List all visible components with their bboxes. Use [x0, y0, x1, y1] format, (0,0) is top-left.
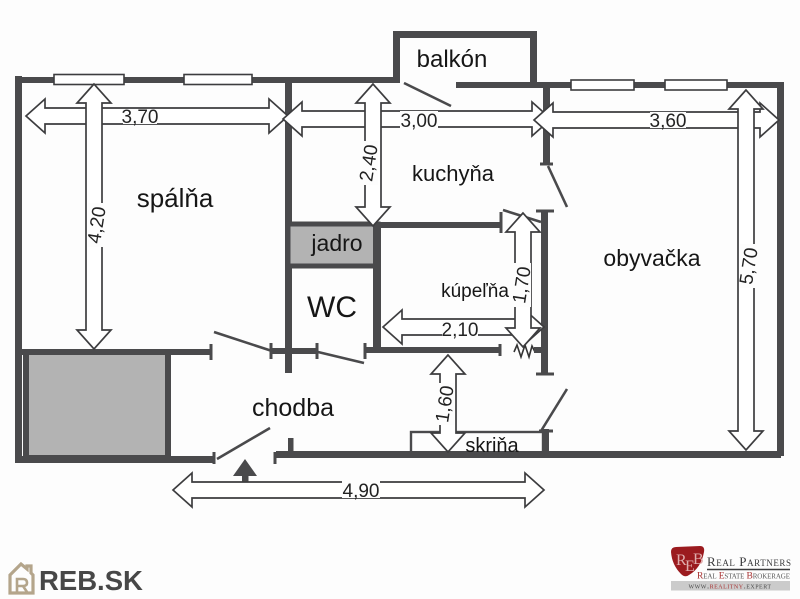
svg-text:WC: WC [307, 291, 357, 324]
svg-text:obyvačka: obyvačka [603, 245, 700, 271]
svg-text:chodba: chodba [252, 394, 334, 422]
svg-text:balkón: balkón [417, 46, 488, 73]
svg-text:3,60: 3,60 [650, 111, 687, 132]
svg-text:spálňa: spálňa [137, 183, 214, 213]
svg-text:Real Partners: Real Partners [707, 554, 791, 569]
svg-text:B: B [693, 551, 704, 568]
svg-text:skriňa: skriňa [465, 435, 519, 457]
svg-text:3,70: 3,70 [122, 107, 159, 128]
svg-text:4,90: 4,90 [343, 481, 380, 502]
svg-text:2,10: 2,10 [442, 320, 479, 341]
svg-text:REB.SK: REB.SK [39, 565, 143, 596]
svg-text:jadro: jadro [310, 230, 362, 256]
svg-text:kuchyňa: kuchyňa [412, 161, 495, 186]
svg-text:www.realitny.expert: www.realitny.expert [688, 580, 771, 590]
svg-text:3,00: 3,00 [401, 111, 438, 132]
svg-text:kúpeľňa: kúpeľňa [441, 281, 509, 302]
